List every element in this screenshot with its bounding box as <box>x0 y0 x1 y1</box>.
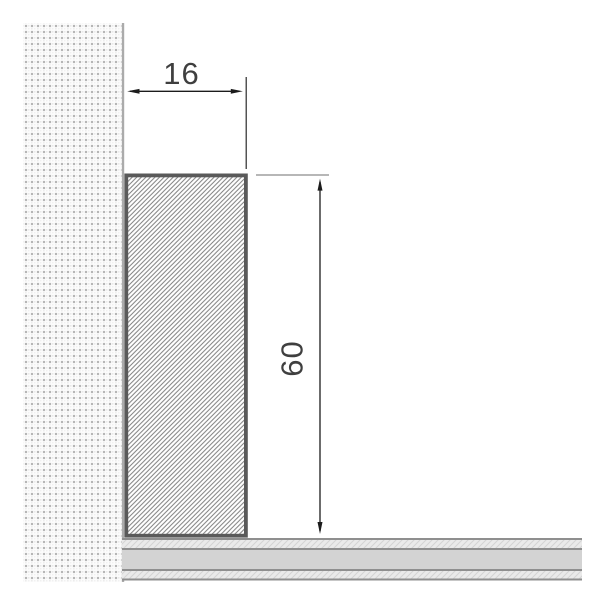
svg-text:60: 60 <box>274 340 309 376</box>
svg-text:16: 16 <box>163 56 199 91</box>
